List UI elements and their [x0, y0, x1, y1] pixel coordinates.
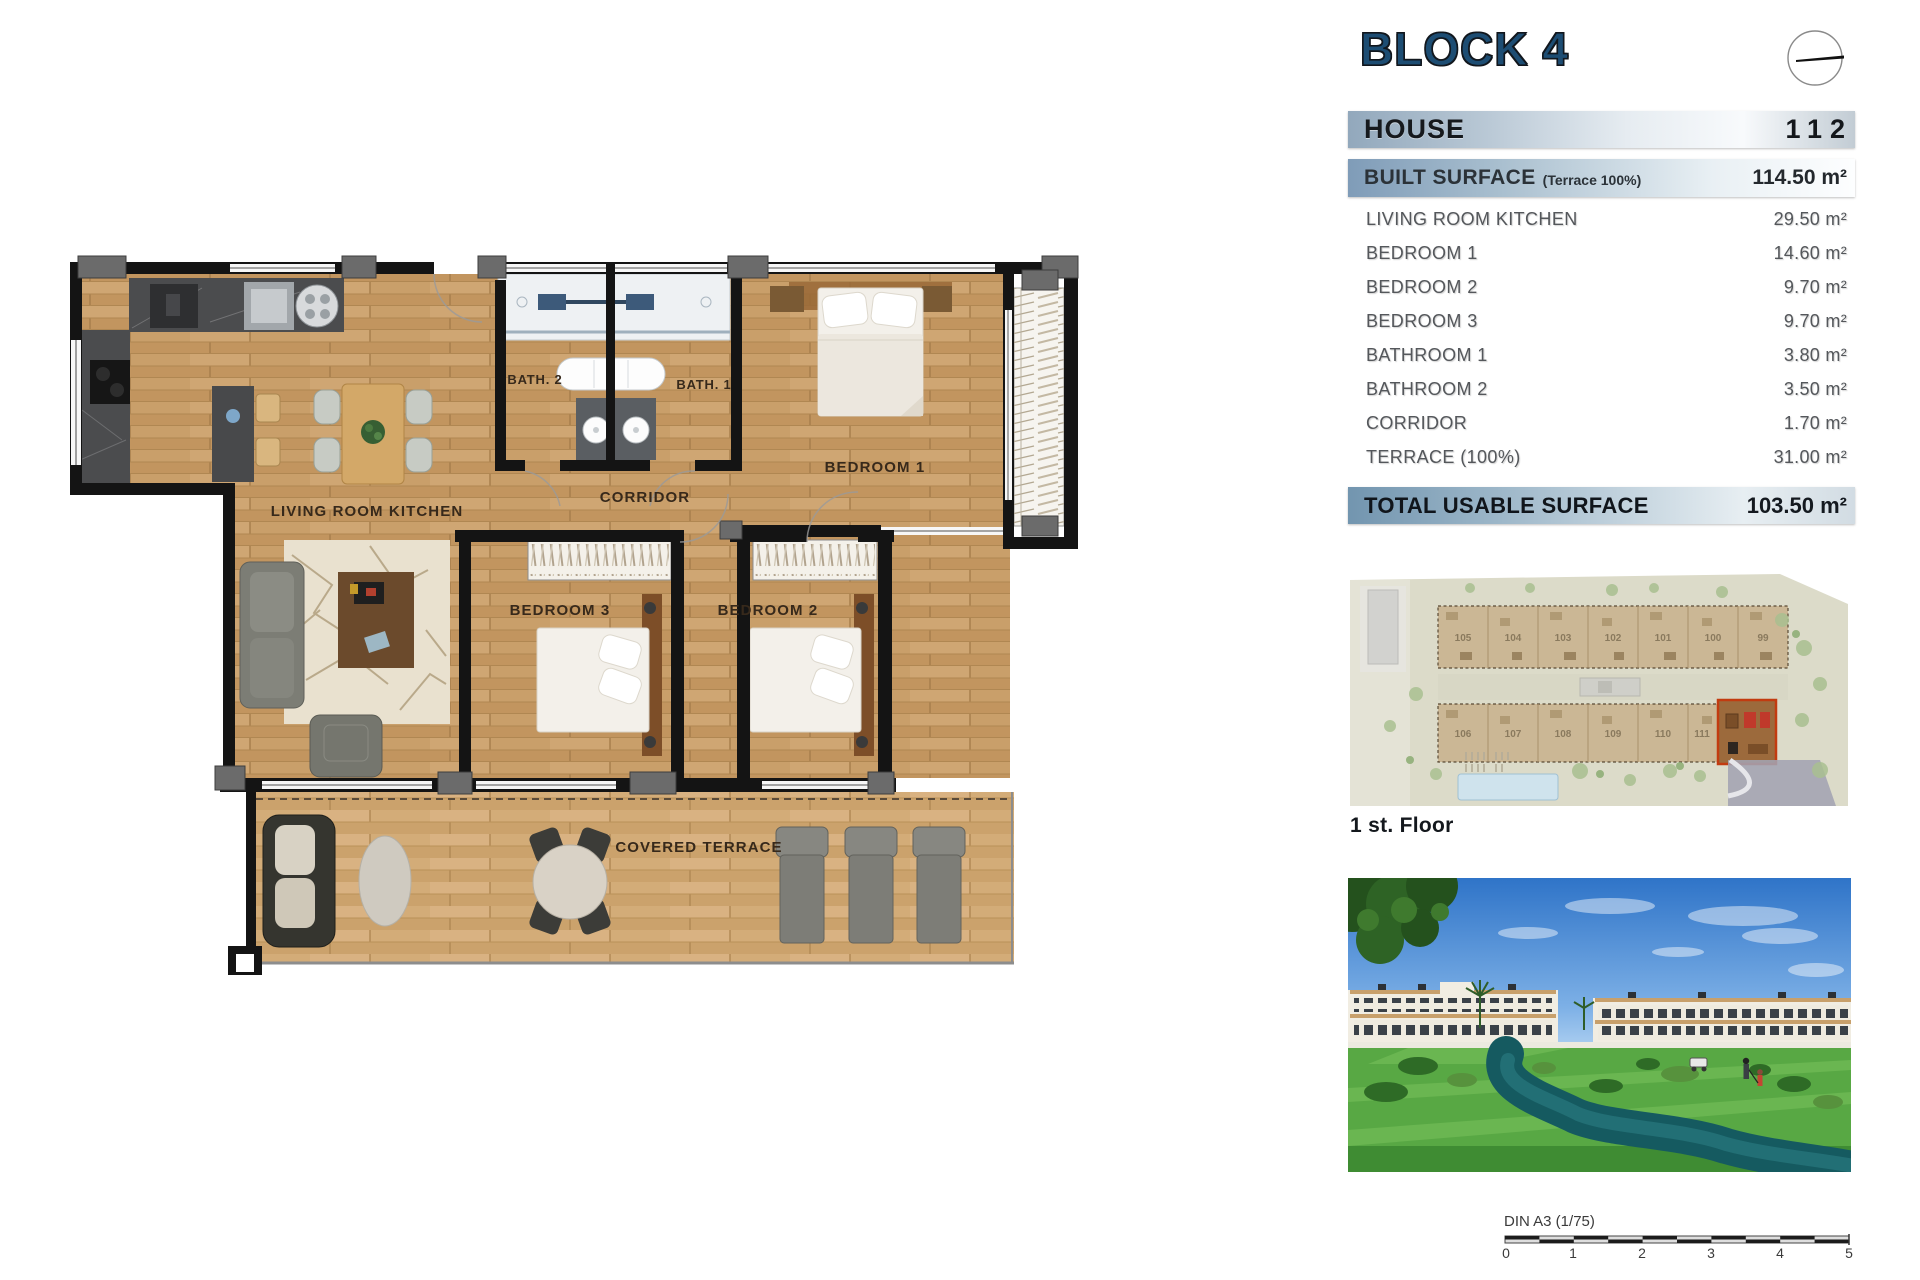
svg-text:101: 101 [1655, 633, 1672, 644]
floor-plan-drawing: LIVING ROOM KITCHEN BATH. 2 BATH. 1 CORR… [70, 210, 1080, 975]
outdoor-rug [359, 836, 411, 926]
surface-row: BATHROOM 23.50 m² [1348, 372, 1855, 406]
site-median-detail [1598, 681, 1612, 693]
surface-row-label: BEDROOM 3 [1366, 311, 1784, 332]
label-bedroom-3: BEDROOM 3 [510, 602, 611, 619]
total-surface-label: TOTAL USABLE SURFACE [1364, 493, 1649, 519]
scale-tick: 3 [1707, 1245, 1715, 1261]
label-bedroom-2: BEDROOM 2 [718, 602, 819, 619]
bedroom-2 [750, 540, 877, 756]
built-surface-label: BUILT SURFACE [1364, 166, 1536, 190]
label-covered-terrace: COVERED TERRACE [615, 839, 782, 856]
nightstand [770, 286, 804, 312]
label-bath-2: BATH. 2 [507, 372, 562, 387]
built-surface-note: (Terrace 100%) [1543, 168, 1642, 188]
scale-tick: 1 [1569, 1245, 1577, 1261]
site-building-row-bottom [1438, 704, 1718, 762]
surface-row-label: BEDROOM 1 [1366, 243, 1774, 264]
surface-row-value: 14.60 m² [1774, 243, 1847, 264]
surface-row: BEDROOM 114.60 m² [1348, 236, 1855, 270]
surface-row-label: BATHROOM 1 [1366, 345, 1784, 366]
svg-text:111: 111 [1694, 729, 1710, 740]
surface-row: BEDROOM 39.70 m² [1348, 304, 1855, 338]
svg-text:110: 110 [1655, 729, 1672, 740]
surface-row-value: 31.00 m² [1774, 447, 1847, 468]
surface-row-label: BEDROOM 2 [1366, 277, 1784, 298]
label-bedroom-1: BEDROOM 1 [825, 459, 926, 476]
surface-row-label: TERRACE (100%) [1366, 447, 1774, 468]
label-corridor: CORRIDOR [600, 489, 690, 506]
scale-tick: 4 [1776, 1245, 1784, 1261]
scale-tick: 0 [1502, 1245, 1510, 1261]
surface-row: BATHROOM 13.80 m² [1348, 338, 1855, 372]
surface-row: LIVING ROOM KITCHEN29.50 m² [1348, 202, 1855, 236]
surface-row-value: 3.50 m² [1784, 379, 1847, 400]
scale-tick: 2 [1638, 1245, 1646, 1261]
house-row: HOUSE 112 [1348, 111, 1855, 148]
svg-text:103: 103 [1555, 633, 1572, 644]
total-surface-row: TOTAL USABLE SURFACE 103.50 m² [1348, 487, 1855, 524]
surface-row-label: CORRIDOR [1366, 413, 1784, 434]
site-plan: 105 104 103 102 101 100 99 106 107 108 1… [1350, 574, 1848, 808]
project-photo [1348, 878, 1851, 1172]
pergola-louver-strip [1014, 288, 1064, 526]
svg-text:105: 105 [1455, 633, 1472, 644]
built-surface-value: 114.50 m² [1752, 166, 1847, 190]
svg-text:102: 102 [1605, 633, 1622, 644]
surface-table: LIVING ROOM KITCHEN29.50 m² BEDROOM 114.… [1348, 202, 1855, 474]
svg-text:100: 100 [1705, 633, 1722, 644]
house-number: 112 [1785, 114, 1853, 145]
bedroom-3 [528, 540, 671, 756]
label-bath-1: BATH. 1 [676, 377, 731, 392]
svg-text:107: 107 [1505, 729, 1522, 740]
surface-row: CORRIDOR1.70 m² [1348, 406, 1855, 440]
floor-caption: 1 st. Floor [1350, 814, 1454, 838]
nightstand [922, 286, 952, 312]
scale-bar [1504, 1234, 1852, 1246]
surface-row-value: 3.80 m² [1784, 345, 1847, 366]
total-surface-value: 103.50 m² [1747, 493, 1847, 519]
north-arrow-icon [1786, 29, 1848, 89]
svg-text:99: 99 [1757, 633, 1769, 644]
brochure-page: LIVING ROOM KITCHEN BATH. 2 BATH. 1 CORR… [0, 0, 1920, 1280]
block-title: BLOCK 4 [1360, 22, 1569, 76]
photo-drawing [1348, 878, 1851, 1172]
surface-row-value: 9.70 m² [1784, 311, 1847, 332]
svg-text:104: 104 [1505, 633, 1522, 644]
site-pool [1458, 774, 1558, 800]
sun-loungers [776, 827, 965, 943]
floor-plan: LIVING ROOM KITCHEN BATH. 2 BATH. 1 CORR… [70, 210, 1080, 975]
surface-row-value: 1.70 m² [1784, 413, 1847, 434]
svg-text:106: 106 [1455, 729, 1472, 740]
surface-row-value: 29.50 m² [1774, 209, 1847, 230]
built-surface-row: BUILT SURFACE (Terrace 100%) 114.50 m² [1348, 159, 1855, 197]
surface-row-label: LIVING ROOM KITCHEN [1366, 209, 1774, 230]
scale-tick: 5 [1845, 1245, 1853, 1261]
surface-row-value: 9.70 m² [1784, 277, 1847, 298]
scale-bar-label: DIN A3 (1/75) [1504, 1213, 1595, 1230]
svg-text:108: 108 [1555, 729, 1572, 740]
site-building-aux [1368, 590, 1398, 664]
surface-row: BEDROOM 29.70 m² [1348, 270, 1855, 304]
site-highlighted-unit [1718, 700, 1776, 764]
surface-row-label: BATHROOM 2 [1366, 379, 1784, 400]
house-label: HOUSE [1364, 114, 1465, 145]
svg-text:109: 109 [1605, 729, 1622, 740]
site-plan-drawing: 105 104 103 102 101 100 99 106 107 108 1… [1350, 574, 1848, 808]
surface-row: TERRACE (100%)31.00 m² [1348, 440, 1855, 474]
label-living-room-kitchen: LIVING ROOM KITCHEN [271, 503, 464, 520]
